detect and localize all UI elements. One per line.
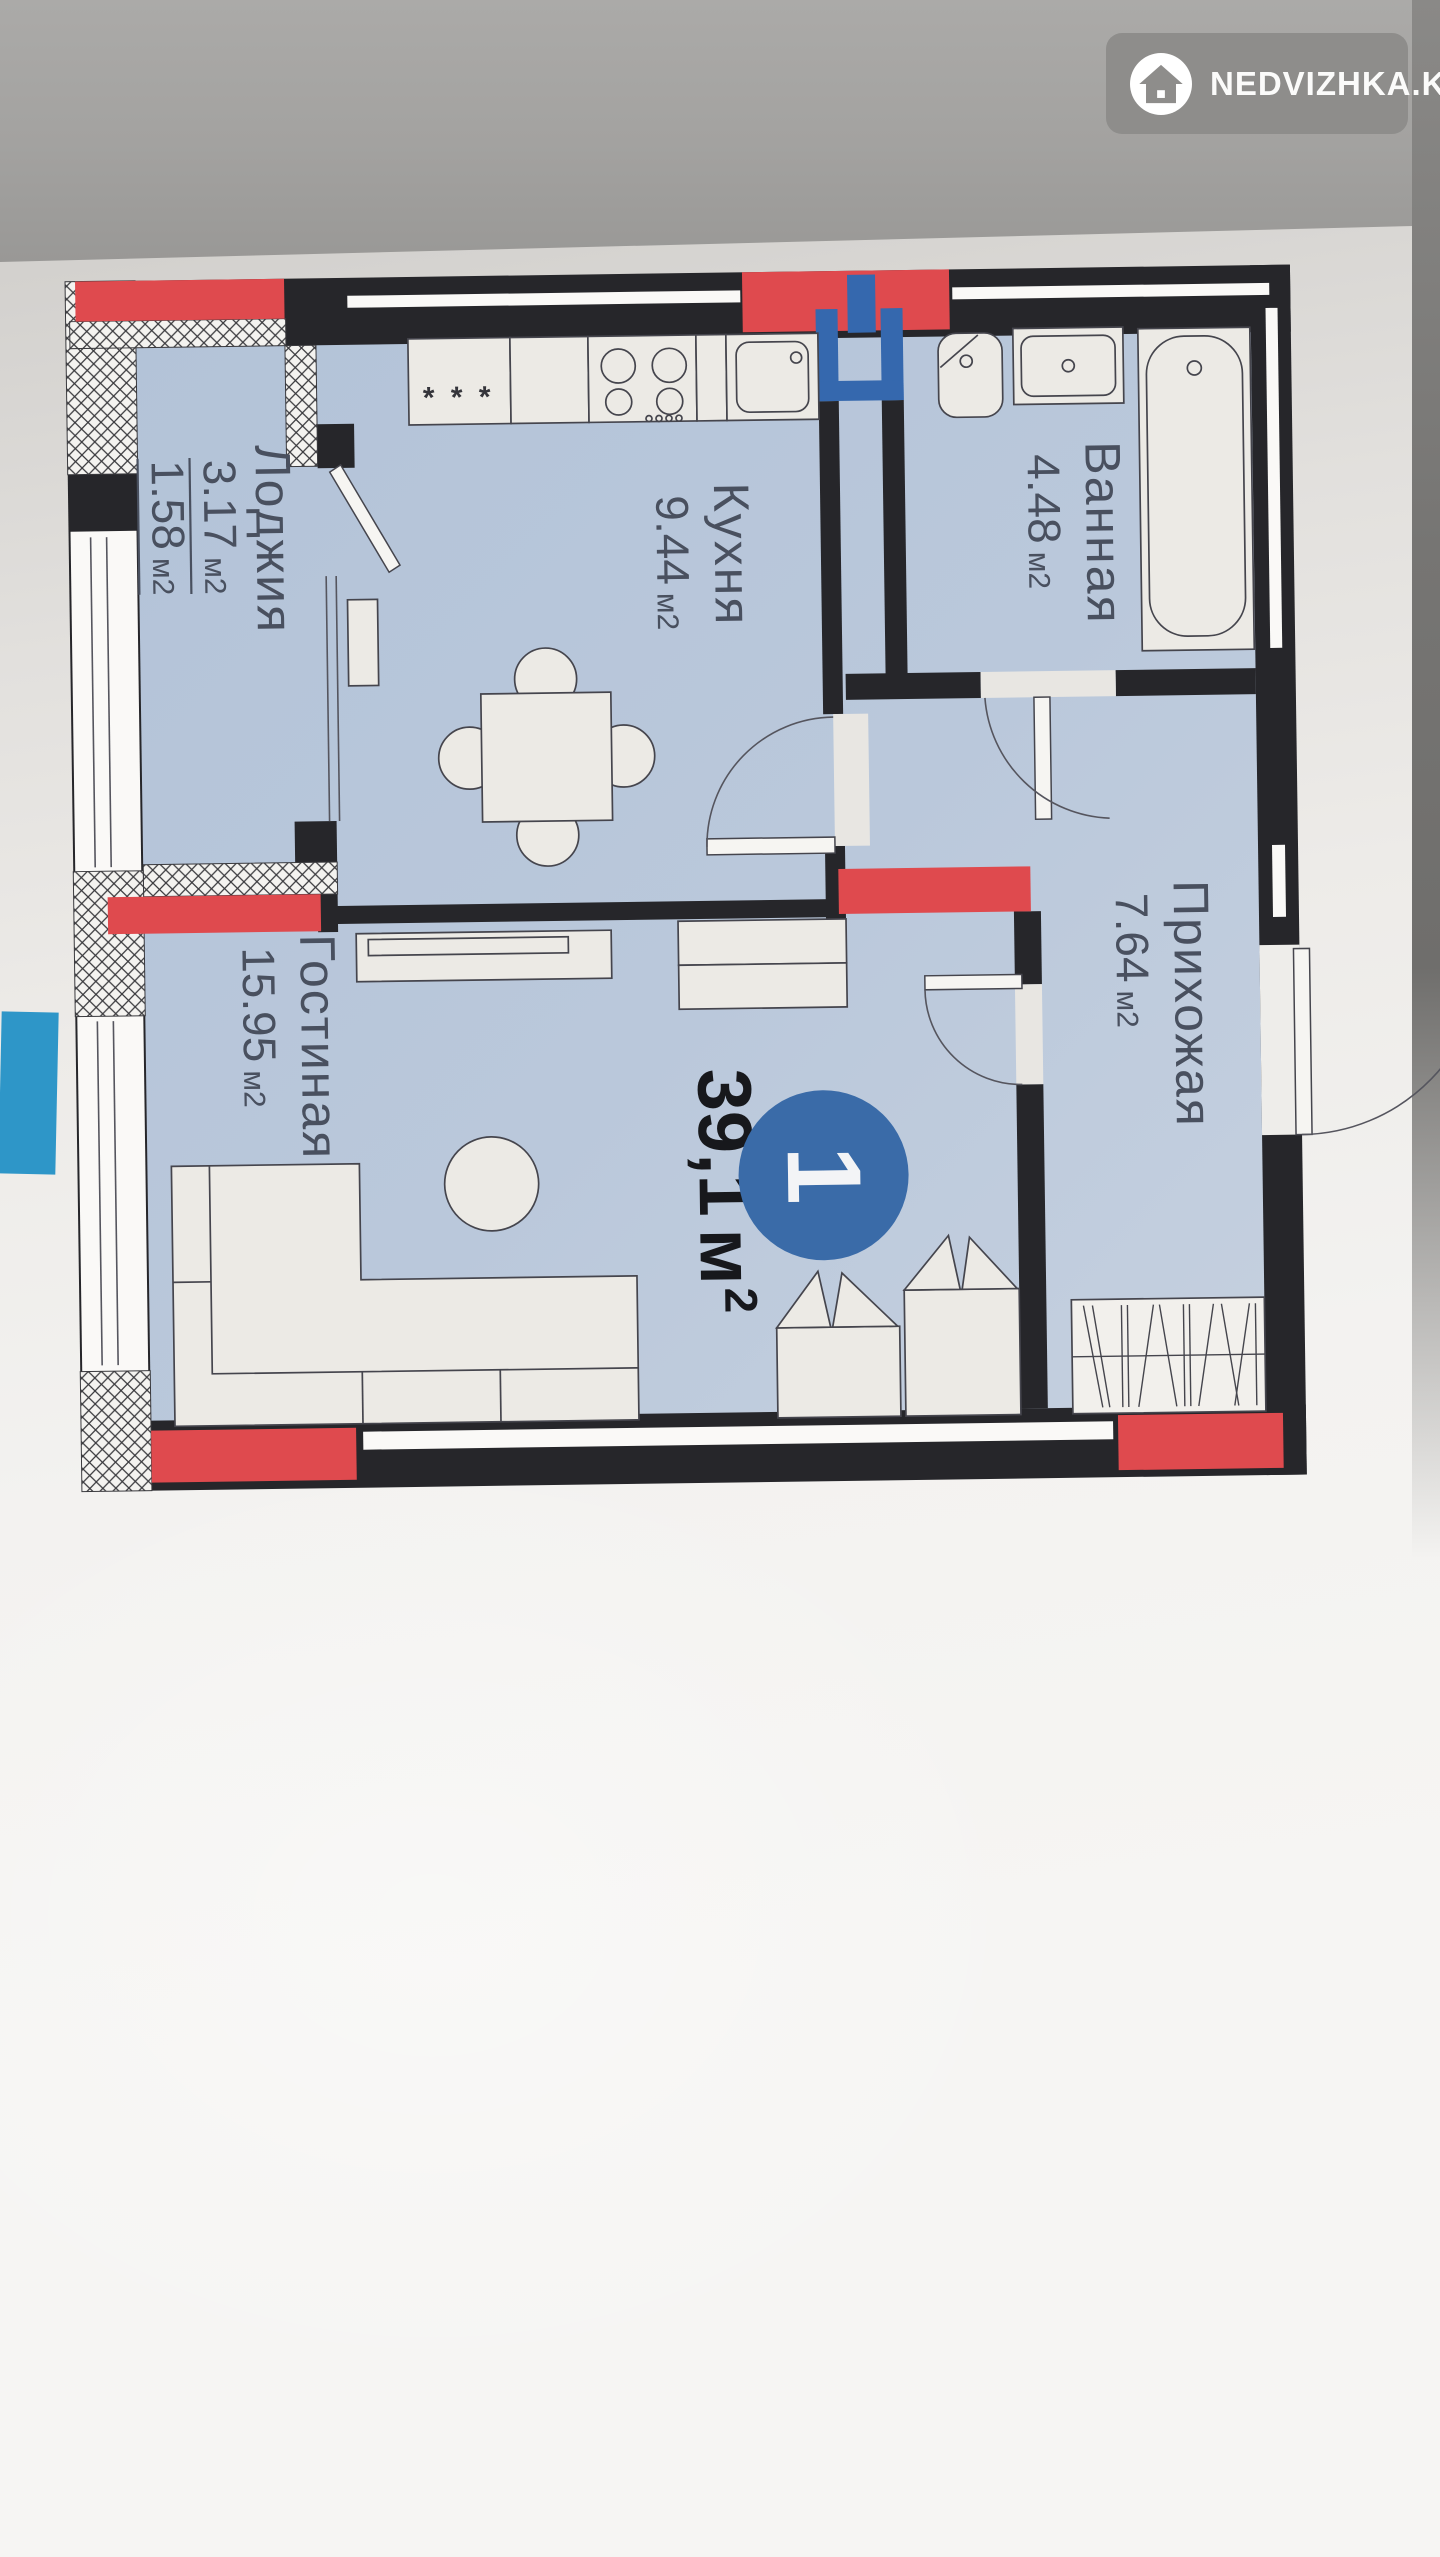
blue-edge-object [0,1011,59,1174]
kitchen-door-opening [833,714,870,846]
kitchen-door [707,837,835,855]
washbasin [1021,335,1116,396]
wardrobe-1 [777,1326,901,1418]
coffee-table [444,1136,539,1231]
floor-plan-drawing: * * * [47,260,1440,1495]
wall-bathroom-bottom-right [1116,668,1256,696]
loggia-window [71,531,142,872]
unit-number: 1 [765,1145,883,1205]
wardrobe-2 [904,1289,1021,1417]
hatch-bottom-left [80,1371,152,1492]
room-label-bathroom: Ванная [1074,441,1133,625]
room-label-kitchen: Кухня [703,482,761,627]
entrance-door [1293,948,1312,1134]
room-label-living: Гостиная [289,934,348,1161]
photo-of-floor-plan: { "watermark": { "brand": "NEDVIZHKA.KZ"… [0,0,1440,2557]
hatch-left-mid [73,871,145,1017]
room-label-hallway: Прихожая [1162,880,1221,1128]
wall-balcony-bottom [295,821,338,869]
kitchen-cabinet-2 [696,335,727,421]
living-door-opening [1015,984,1043,1084]
kitchen-cabinet-1 [510,336,589,423]
vent-bottom-bar [816,380,903,401]
tv-stand-inner [368,937,568,956]
red-top-mid [742,269,950,332]
wall-hall-living-stub [1014,911,1042,984]
wall-bathroom-left [882,400,908,675]
red-top-left [75,279,285,322]
watermark-brand: NEDVIZHKA.KZ [1210,65,1440,103]
living-room-door [925,974,1022,989]
wall-balcony-post [317,424,355,469]
hall-cabinet-top [678,919,847,965]
kitchen-ledge [347,599,378,685]
bathtub [1146,335,1246,636]
house-icon [1130,53,1192,115]
red-loggia-living [108,894,321,934]
red-divider [838,866,1031,914]
entrance-door-arc [1299,948,1440,1135]
toilet [938,333,1003,418]
red-bottom-left [151,1428,357,1483]
room-label-loggia: Лоджия [244,444,303,634]
red-bottom-right [1118,1413,1284,1470]
wall-bathroom-bottom-left [846,672,981,700]
fridge-marks: * * * [423,381,495,415]
right-wall-small-slot [1272,845,1286,917]
floor-plan: * * * [47,260,1440,1495]
bathroom-door-opening [981,670,1116,698]
living-window [77,1016,148,1372]
watermark-badge: NEDVIZHKA.KZ [1106,33,1408,134]
hall-cabinet-bottom [679,963,848,1009]
dining-table [481,692,613,822]
wall-hall-living-lower [1016,1084,1048,1408]
hatch-loggia-top [70,319,286,349]
hatch-loggia-living [143,862,337,897]
vent-wall-marker [847,274,876,332]
